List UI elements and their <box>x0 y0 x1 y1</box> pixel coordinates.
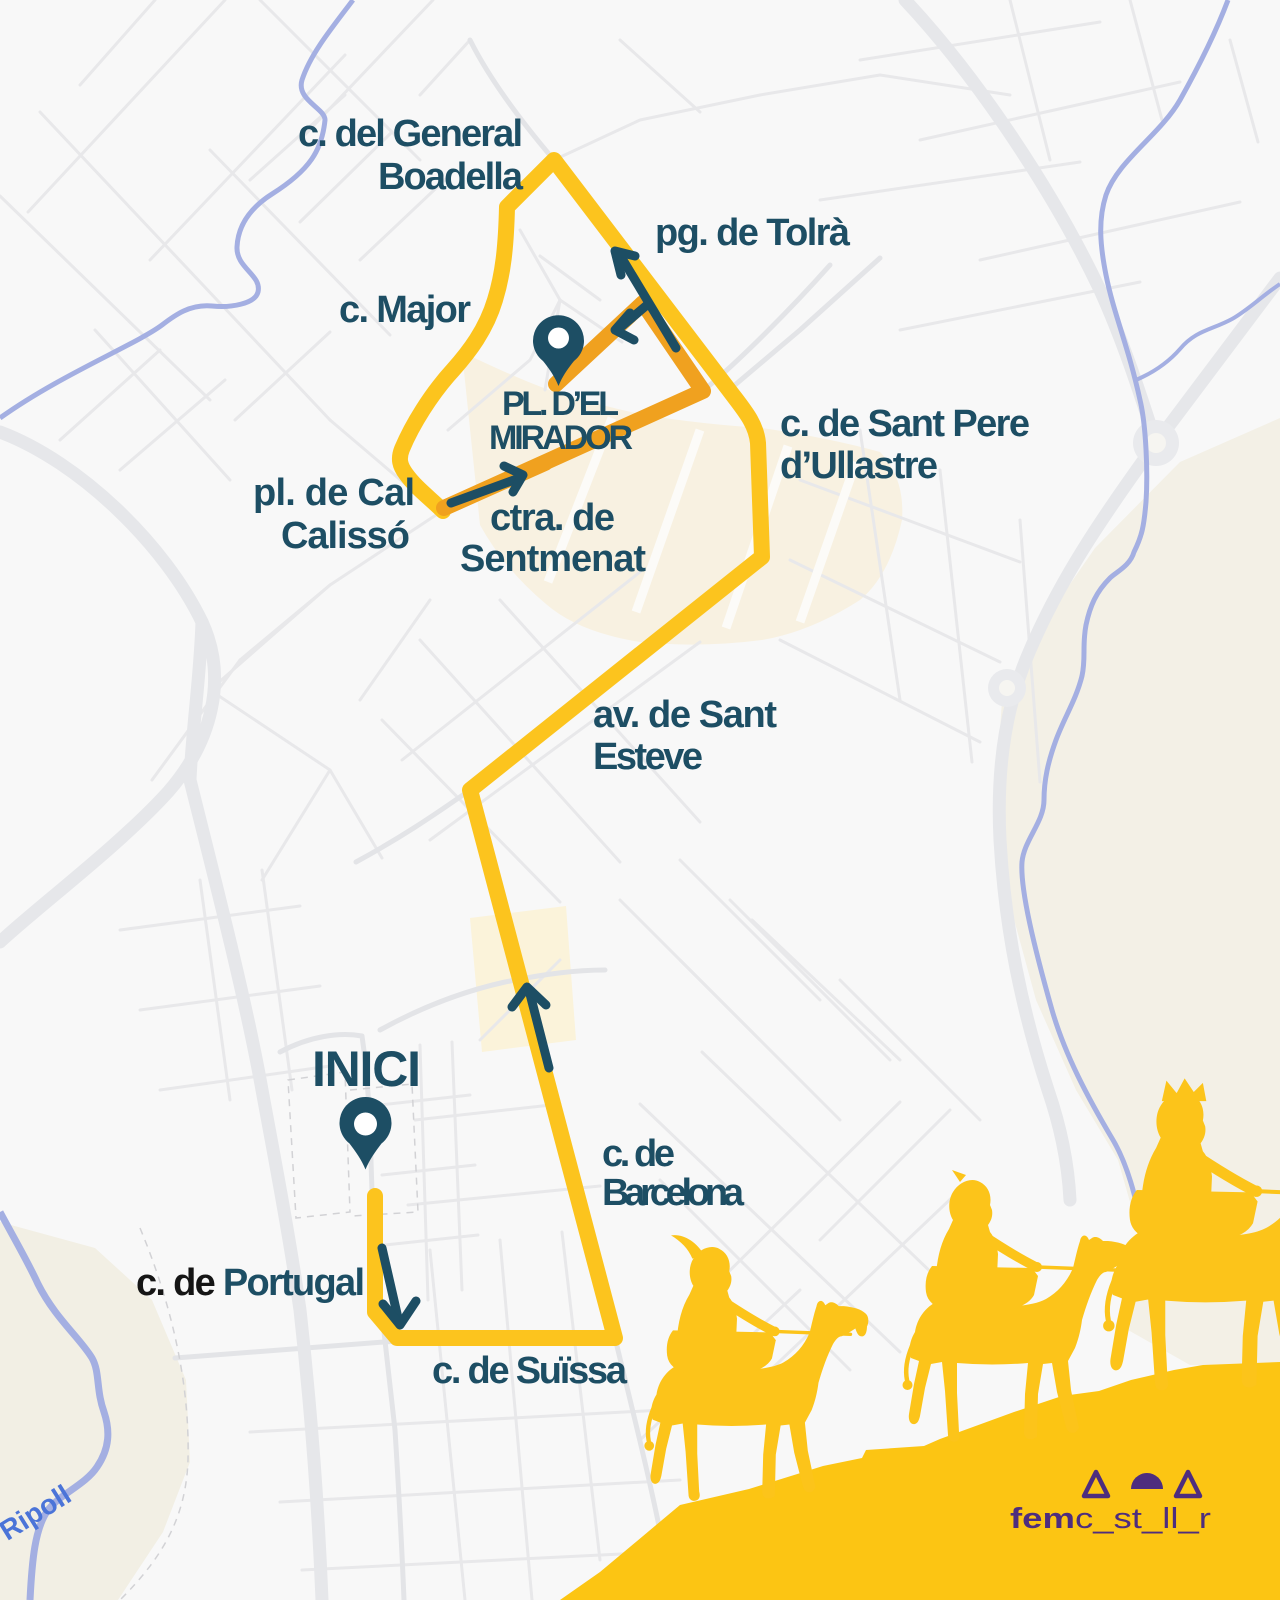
svg-text:Esteve: Esteve <box>593 736 703 778</box>
svg-text:Barcelona: Barcelona <box>602 1172 745 1214</box>
svg-text:Boadella: Boadella <box>378 156 524 198</box>
svg-text:femc_st_ll_r: femc_st_ll_r <box>1010 1503 1211 1535</box>
svg-text:ctra. de: ctra. de <box>490 497 615 539</box>
svg-text:Sentmenat: Sentmenat <box>460 538 646 580</box>
svg-text:MIRADOR: MIRADOR <box>489 419 633 457</box>
svg-text:d’Ullastre: d’Ullastre <box>780 445 938 487</box>
svg-text:c. del General: c. del General <box>298 113 523 155</box>
svg-text:PL. D’EL: PL. D’EL <box>502 385 619 423</box>
svg-text:pl. de Cal: pl. de Cal <box>253 472 415 514</box>
svg-text:c. de Sant Pere: c. de Sant Pere <box>780 403 1030 445</box>
svg-text:c. de: c. de <box>602 1133 675 1175</box>
svg-text:pg. de Tolrà: pg. de Tolrà <box>655 212 851 254</box>
svg-text:c. Major: c. Major <box>339 289 471 331</box>
svg-text:c. de Portugal: c. de Portugal <box>136 1262 365 1304</box>
svg-text:Calissó: Calissó <box>281 515 410 557</box>
svg-text:av. de Sant: av. de Sant <box>593 694 777 736</box>
svg-text:c. de Suïssa: c. de Suïssa <box>432 1350 628 1392</box>
svg-text:INICI: INICI <box>312 1041 421 1097</box>
